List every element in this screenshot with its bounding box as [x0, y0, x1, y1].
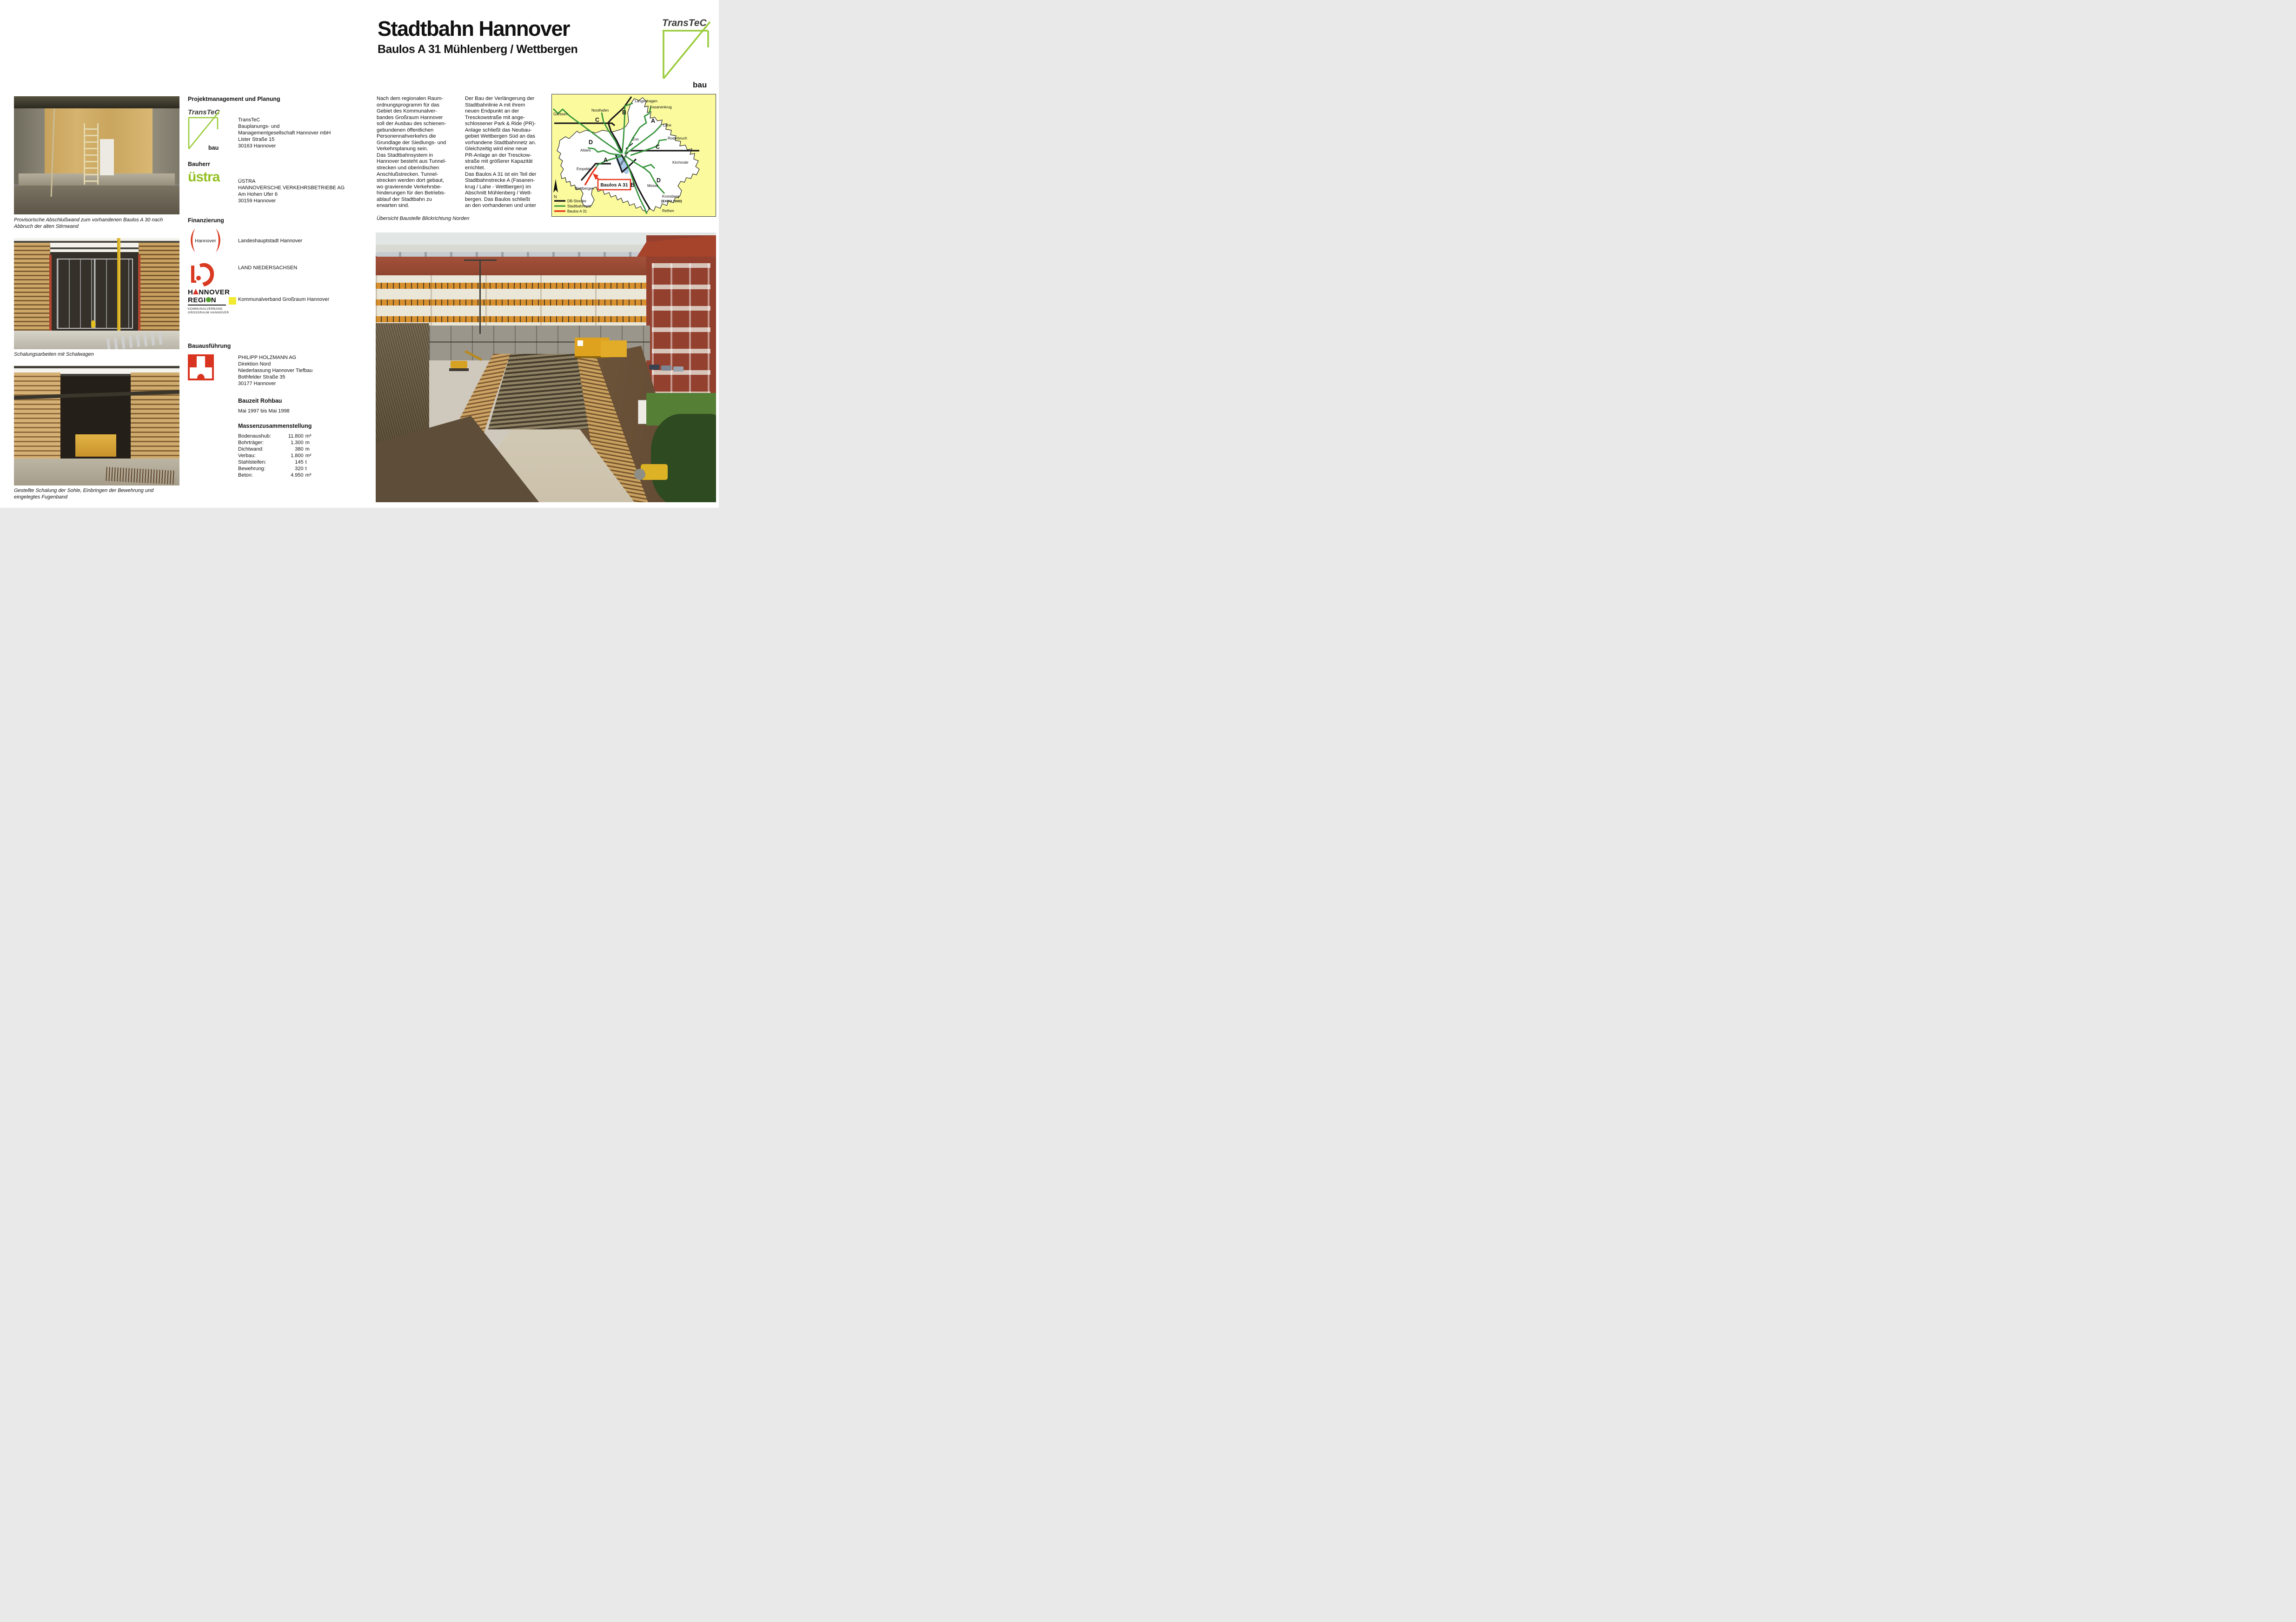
svg-text:Roderbruch: Roderbruch — [668, 136, 687, 140]
parked-car — [661, 366, 671, 371]
transtec-logo-lines — [663, 22, 710, 79]
svg-text:C: C — [656, 144, 660, 150]
photo3-caption: Gestellte Schalung der Sohle, Einbringen… — [14, 488, 181, 500]
uestra-logo: üstra — [188, 169, 219, 185]
crane-mast — [479, 259, 481, 334]
ph-layer — [577, 340, 583, 346]
roller-drum — [634, 469, 645, 480]
svg-text:Ahlem: Ahlem — [580, 148, 591, 153]
transtec-bau-label-small: bau — [208, 145, 219, 151]
transtec-bau-label: bau — [693, 80, 707, 89]
svg-text:Baulos A 31: Baulos A 31 — [567, 209, 587, 213]
ph-layer — [117, 238, 120, 335]
excavator — [451, 361, 467, 368]
region-logo-subtext: KOMMUNALVERBAND GROSSRAUM HANNOVER — [188, 307, 237, 315]
formwork-machine — [75, 434, 116, 457]
red-triangle-icon — [193, 289, 199, 294]
ph-layer — [14, 96, 179, 108]
shrubs — [651, 414, 716, 502]
ph-layer — [49, 255, 52, 331]
svg-text:B: B — [630, 182, 635, 188]
svg-text:D: D — [657, 177, 661, 184]
finanzierung-niedersachsen-label: LAND NIEDERSACHSEN — [238, 265, 297, 271]
ph-layer — [100, 139, 114, 175]
svg-text:(EXPO 2000): (EXPO 2000) — [661, 199, 682, 203]
article-column-2: Der Bau der Verlängerung der Stadtbahnli… — [465, 96, 545, 209]
ph-layer — [94, 259, 133, 329]
projekt-address: TransTeC Bauplanungs- und Managementgese… — [238, 117, 331, 150]
big-photo-caption: Übersicht Baustelle Blickrichtung Norden — [377, 216, 469, 221]
article-column-1: Nach dem regionalen Raum- ordnungsprogra… — [377, 96, 457, 209]
ladder — [84, 123, 99, 185]
ph-layer — [376, 255, 650, 275]
svg-text:Kirchrode: Kirchrode — [672, 160, 689, 165]
section-projektmanagement-heading: Projektmanagement und Planung — [188, 96, 280, 102]
ph-layer — [138, 255, 140, 331]
photo1-caption: Provisorische Abschlußwand zum vorhanden… — [14, 217, 181, 230]
transtec-bau-logo: TransTeC bau — [662, 18, 716, 90]
apartment-building — [646, 235, 716, 403]
site-container-yellow — [601, 340, 627, 357]
page-subtitle: Baulos A 31 Mühlenberg / Wettbergen — [378, 43, 577, 56]
photo2-caption: Schalungsarbeiten mit Schalwagen — [14, 352, 181, 358]
brochure-page: Stadtbahn Hannover Baulos A 31 Mühlenber… — [0, 0, 719, 508]
hannover-region-logo: HNNOVER REGIN KOMMUNALVERBAND GROSSRAUM … — [188, 288, 237, 315]
svg-text:Garbsen: Garbsen — [553, 112, 568, 116]
svg-text:Langenhagen: Langenhagen — [635, 99, 657, 103]
massen-row: Verbau:1.800m² — [238, 453, 317, 459]
region-logo-line1: HNNOVER — [188, 288, 237, 296]
svg-text:C: C — [595, 117, 599, 123]
ph-layer — [139, 243, 179, 332]
stadtbahn-network-map: Baulos A 31 Garbsen Nordhafen Langenhage… — [551, 94, 716, 217]
massen-row: Bohrträger:1.300m — [238, 440, 317, 446]
crane-jib — [464, 259, 497, 261]
transtec-logo-lines — [188, 111, 219, 149]
page-title: Stadtbahn Hannover — [378, 18, 570, 40]
svg-text:B: B — [622, 109, 626, 116]
transtec-wordmark: TransTeC — [662, 18, 707, 28]
massen-heading: Massenzusammenstellung — [238, 423, 312, 429]
svg-text:Stadtbahnnetz: Stadtbahnnetz — [567, 204, 591, 208]
svg-text:Empelde: Empelde — [577, 167, 591, 171]
svg-text:Nordhafen: Nordhafen — [591, 108, 609, 113]
svg-text:Messe: Messe — [647, 184, 658, 188]
svg-text:DB-Strecke: DB-Strecke — [567, 199, 586, 203]
bauausfuehrung-address: PHILIPP HOLZMANN AG Direktion Nord Niede… — [238, 355, 312, 387]
road-roller — [641, 464, 668, 480]
svg-text:D: D — [589, 139, 593, 146]
green-circle-icon — [206, 297, 211, 302]
transtec-wordmark-small: TransTeC — [188, 108, 220, 116]
landeshauptstadt-hannover-logo: Hannover — [188, 228, 223, 253]
ph-layer — [637, 235, 716, 257]
svg-text:Rethen: Rethen — [662, 209, 674, 213]
ph-layer — [14, 372, 60, 459]
svg-text:Lahe: Lahe — [663, 123, 671, 127]
massen-row: Dichtwand:380m — [238, 446, 317, 453]
parked-car — [673, 366, 683, 372]
map-legend: DB-Strecke Stadtbahnnetz Baulos A 31 — [554, 199, 591, 213]
ph-layer — [131, 372, 179, 459]
bauzeit-heading: Bauzeit Rohbau — [238, 398, 282, 404]
photo-bulkhead-wall — [14, 96, 179, 214]
svg-text:Kronsberg: Kronsberg — [662, 194, 679, 199]
svg-text:Zoo: Zoo — [632, 137, 639, 141]
photo-construction-site-overview — [376, 233, 716, 502]
parked-car — [649, 365, 659, 370]
ph-layer — [14, 186, 179, 214]
logo-right-bracket — [216, 228, 220, 253]
finanzierung-region-label: Kommunalverband Großraum Hannover — [238, 297, 329, 302]
bauzeit-value: Mai 1997 bis Mai 1998 — [238, 408, 290, 414]
bauherr-address: ÜSTRA HANNOVERSCHE VERKEHRSBETRIEBE AG A… — [238, 179, 345, 205]
section-bauausfuehrung-heading: Bauausführung — [188, 343, 231, 349]
worker-figure — [91, 320, 95, 328]
excavator-tracks — [449, 368, 469, 371]
svg-text:A: A — [651, 118, 655, 124]
niedersachsen-horse-logo — [191, 259, 216, 287]
transtec-logo-small: TransTeC bau — [188, 108, 232, 154]
massen-row: Stahlsteifen:145t — [238, 459, 317, 466]
svg-text:N: N — [554, 194, 557, 199]
svg-text:Fasanenkrug: Fasanenkrug — [650, 105, 672, 109]
finanzierung-hannover-label: Landeshauptstadt Hannover — [238, 238, 302, 244]
ph-layer — [45, 108, 153, 173]
ph-layer — [14, 243, 50, 332]
logo-underline — [188, 305, 226, 306]
ph-layer — [652, 263, 710, 393]
massen-row: Bodenaushub:11.800m³ — [238, 433, 317, 440]
section-bauherr-heading: Bauherr — [188, 161, 210, 167]
baulos-callout-label: Baulos A 31 — [600, 182, 628, 188]
hannover-logo-text: Hannover — [195, 238, 216, 244]
photo-formwork-carriage — [14, 238, 179, 349]
massen-row: Bewehrung:320t — [238, 466, 317, 472]
ph-layer — [57, 259, 96, 329]
svg-text:Wettbergen: Wettbergen — [575, 186, 594, 191]
section-finanzierung-heading: Finanzierung — [188, 217, 224, 224]
ph-layer — [376, 252, 650, 257]
massen-row: Beton:4.950m³ — [238, 472, 317, 479]
svg-text:A: A — [604, 157, 608, 163]
photo-base-slab — [14, 365, 179, 485]
yellow-square-icon — [229, 297, 236, 305]
holzmann-logo — [188, 354, 214, 380]
